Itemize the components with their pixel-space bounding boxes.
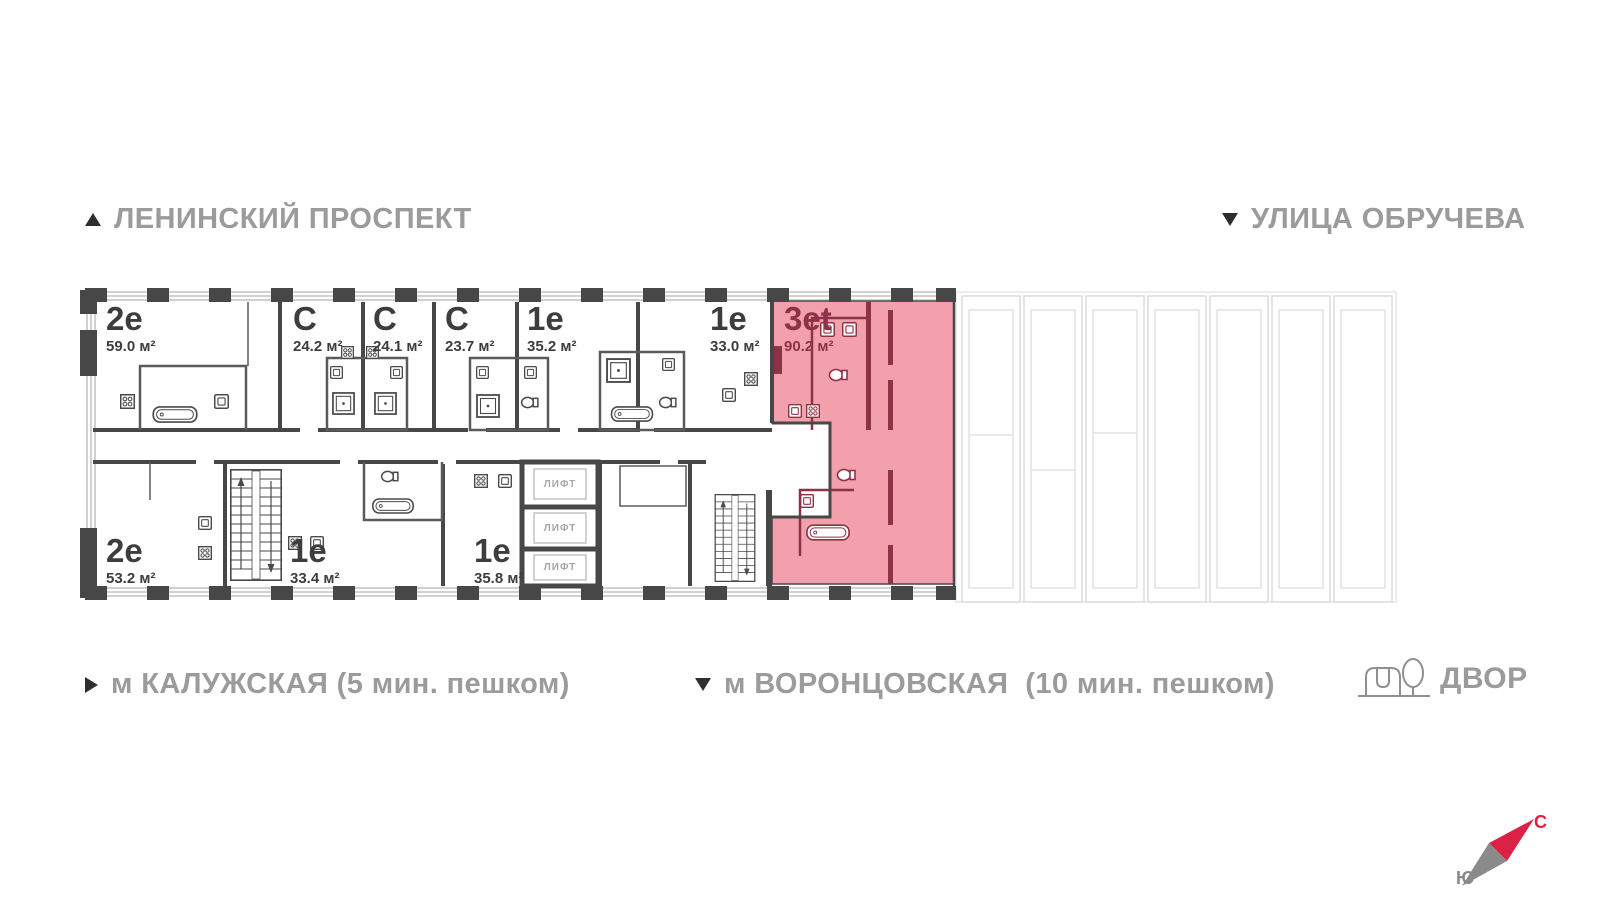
unit-label-s-237[interactable]: С 23.7 м² [445, 302, 494, 354]
elevator-label: ЛИФТ [534, 479, 586, 490]
unit-label-s-241[interactable]: С 24.1 м² [373, 302, 422, 354]
sink-icon [477, 367, 489, 379]
shower-icon [477, 395, 499, 417]
toilet-icon [660, 397, 676, 407]
stove-icon [475, 475, 488, 488]
shower-icon [333, 393, 354, 414]
faded-building-section [956, 292, 1396, 602]
bathtub-icon [153, 407, 196, 422]
toilet-icon [382, 471, 398, 481]
street-name: УЛИЦА ОБРУЧЕВА [1251, 203, 1525, 236]
stove-icon [342, 347, 354, 359]
stove-icon [199, 547, 212, 560]
shower-icon [375, 393, 396, 414]
washer-icon [199, 517, 212, 530]
unit-label-s-242[interactable]: С 24.2 м² [293, 302, 342, 354]
unit-label-1e-358[interactable]: 1е 35.8 м² [474, 534, 523, 586]
floor-plan-page: ЛЕНИНСКИЙ ПРОСПЕКТ УЛИЦА ОБРУЧЕВА м КАЛУ… [0, 0, 1600, 920]
unit-label-1e-352[interactable]: 1е 35.2 м² [527, 302, 576, 354]
bathtub-icon [612, 407, 653, 421]
up-triangle-icon [85, 213, 101, 226]
washer-icon [789, 405, 802, 418]
right-triangle-icon [85, 677, 98, 693]
stairs-icon [715, 495, 755, 582]
sink-icon [525, 367, 537, 379]
sink-icon [391, 367, 403, 379]
metro-name: м КАЛУЖСКАЯ (5 мин. пешком) [111, 668, 570, 701]
sink-icon [801, 495, 814, 508]
metro-label-kaluzhskaya: м КАЛУЖСКАЯ (5 мин. пешком) [85, 668, 570, 701]
street-name: ЛЕНИНСКИЙ ПРОСПЕКТ [114, 203, 472, 236]
floor-plan-drawing [0, 0, 1600, 920]
street-label-obrucheva: УЛИЦА ОБРУЧЕВА [1222, 203, 1525, 236]
yard-icon [1358, 659, 1430, 696]
washer-icon [499, 475, 512, 488]
bathtub-icon [807, 525, 849, 540]
sink-icon [331, 367, 343, 379]
shower-icon [607, 359, 630, 382]
toilet-icon [522, 397, 538, 407]
toilet-icon [838, 470, 856, 481]
street-label-leninsky: ЛЕНИНСКИЙ ПРОСПЕКТ [85, 203, 472, 236]
stairs-icon [231, 470, 281, 580]
washer-icon [215, 395, 229, 409]
sink-icon [843, 323, 857, 337]
unit-label-1e-330[interactable]: 1е 33.0 м² [710, 302, 759, 354]
unit-label-1e-334[interactable]: 1е 33.4 м² [290, 534, 339, 586]
sink-icon [663, 359, 675, 371]
unit-label-3et-902-highlighted[interactable]: 3еt 90.2 м² [784, 302, 833, 354]
toilet-icon [830, 370, 848, 381]
stove-icon [807, 405, 820, 418]
metro-label-vorontsovskaya: м ВОРОНЦОВСКАЯ (10 мин. пешком) [695, 668, 1275, 701]
compass-south-label: Ю [1456, 868, 1475, 889]
down-triangle-icon [1222, 213, 1238, 226]
metro-name: м ВОРОНЦОВСКАЯ (10 мин. пешком) [724, 668, 1275, 701]
stove-icon [121, 395, 135, 409]
down-triangle-icon [695, 678, 711, 691]
unit-label-2e-59[interactable]: 2е 59.0 м² [106, 302, 155, 354]
yard-label: ДВОР [1440, 662, 1528, 696]
elevator-label: ЛИФТ [534, 523, 586, 534]
unit-label-2e-532[interactable]: 2е 53.2 м² [106, 534, 155, 586]
compass-north-label: С [1534, 812, 1547, 833]
stove-icon [745, 373, 758, 386]
washer-icon [723, 389, 736, 402]
bathtub-icon [373, 499, 413, 513]
elevator-label: ЛИФТ [534, 562, 586, 573]
fixtures [121, 347, 758, 560]
